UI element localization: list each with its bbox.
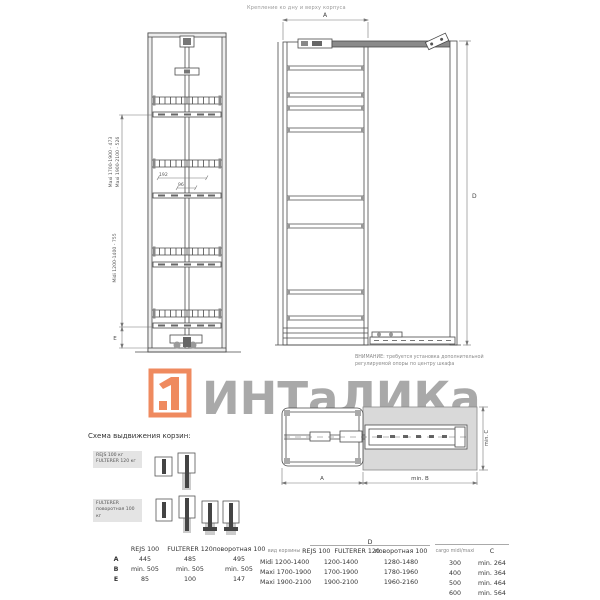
spacer	[258, 539, 310, 546]
side-view-drawing: A D ВНИМАНИЕ: требуется установка дополн…	[270, 8, 485, 373]
plan-dim-b: min. B	[411, 476, 429, 482]
cell: 85	[124, 574, 166, 584]
cell: 300	[435, 558, 475, 568]
col-header: поворотная 100	[214, 544, 264, 554]
dim-label-96: 96	[178, 182, 184, 188]
front-view-cabinet	[135, 33, 241, 352]
dim-label-maxi2: Maxi 1900-2100 - 526	[115, 137, 121, 188]
col-header: REJS 100	[124, 544, 166, 554]
row-label: A	[108, 554, 124, 564]
cell: Maxi 1900-2100	[258, 577, 310, 587]
cell: min. 505	[124, 564, 166, 574]
cell: 445	[124, 554, 166, 564]
brand-logo-icon	[148, 368, 194, 420]
cell: 600	[435, 588, 475, 598]
cell: 100	[166, 574, 214, 584]
cell: min. 564	[475, 588, 509, 598]
cell: min. 505	[214, 564, 264, 574]
col-header-c: C	[475, 545, 509, 558]
dim-label-192: 192	[159, 172, 168, 178]
warning-note-line2: регулируемой опоры по центру шкафа	[355, 360, 454, 367]
cell: min. 464	[475, 578, 509, 588]
cell: Maxi 1700-1900	[258, 567, 310, 577]
dim-label-a: A	[323, 12, 328, 19]
cell: 485	[166, 554, 214, 564]
side-view-unit	[275, 33, 461, 345]
row-label: E	[108, 574, 124, 584]
spacer	[108, 544, 124, 554]
cell: 1900-2100	[310, 577, 372, 587]
col-header-cargo: cargo midi/maxi	[435, 545, 475, 558]
scheme-label-fulterer-rotary: FULTERER поворотная 100 кг	[93, 499, 142, 522]
cell: 1960-2160	[372, 577, 430, 587]
plan-view-unit	[282, 407, 477, 470]
scheme-title: Схема выдвижения корзин:	[88, 432, 191, 440]
cell: 1780-1960	[372, 567, 430, 577]
scheme-label-line: поворотная 100 кг	[96, 507, 139, 520]
dim-label-midi: Midi 1200-1400 - 755	[112, 233, 118, 282]
cell: min. 264	[475, 558, 509, 568]
scheme-label-line: FULTERER 120 кг	[96, 459, 139, 465]
plan-dim-c: min. C	[484, 429, 490, 446]
row-label: B	[108, 564, 124, 574]
height-table: D вид корзины REJS 100 FULTERER 120 пово…	[258, 539, 430, 587]
cell: Midi 1200-1400	[258, 557, 310, 567]
scheme-label-rejs-fulterer: REJS 100 кг FULTERER 120 кг	[93, 451, 142, 468]
cell: 500	[435, 578, 475, 588]
cell: 400	[435, 568, 475, 578]
col-header: поворотная 100	[372, 546, 430, 557]
dim-label-maxi1: Maxi 1700-1900 - 473	[108, 137, 114, 188]
plan-dim-a: A	[320, 476, 324, 482]
scheme-figures	[150, 450, 250, 540]
cell: 1280-1480	[372, 557, 430, 567]
group-header-d: D	[310, 539, 430, 546]
cell: 1200-1400	[310, 557, 372, 567]
cell: 1700-1900	[310, 567, 372, 577]
dim-label-e: E	[113, 336, 117, 342]
cell: 147	[214, 574, 264, 584]
col-header: FULTERER 120	[166, 544, 214, 554]
warning-note-line1: ВНИМАНИЕ: требуется установка дополнител…	[355, 353, 484, 360]
depth-table: cargo midi/maxi C 300 min. 264 400 min. …	[435, 544, 509, 598]
cell: min. 364	[475, 568, 509, 578]
plan-view-drawing: A min. B min. C	[262, 398, 497, 503]
cell: min. 505	[166, 564, 214, 574]
dim-label-d: D	[472, 193, 477, 200]
spec-table: REJS 100 FULTERER 120 поворотная 100 A 4…	[108, 544, 264, 584]
front-view-drawing: Maxi 1700-1900 - 473 Maxi 1900-2100 - 52…	[95, 25, 245, 370]
col-header: REJS 100 FULTERER 120	[310, 546, 372, 557]
cell: 495	[214, 554, 264, 564]
